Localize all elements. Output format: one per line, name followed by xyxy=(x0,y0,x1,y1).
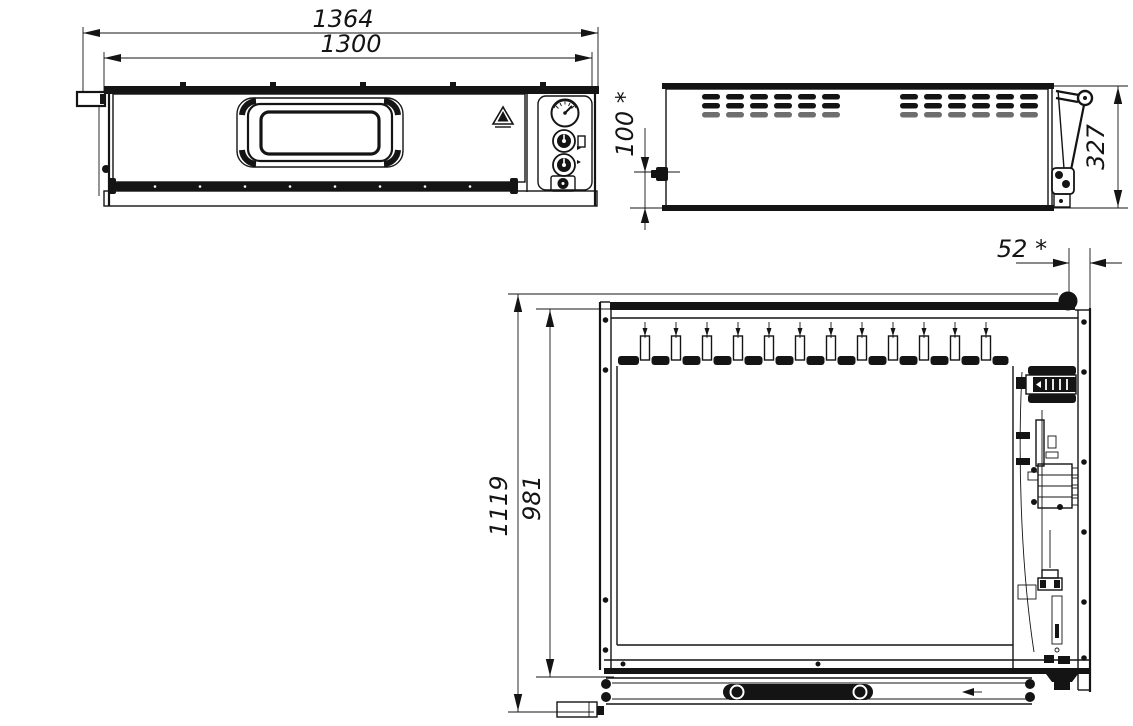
front-view: 1364 1300 xyxy=(77,5,599,206)
warning-triangle-icon xyxy=(493,107,513,127)
lower-valve-assembly xyxy=(1018,530,1070,664)
pilot-assembly xyxy=(1016,420,1058,466)
door-handle-rail xyxy=(114,182,514,191)
burner-nozzle-row xyxy=(618,322,1009,365)
hinge-block xyxy=(1052,168,1074,194)
top-view: 52 * 1119 981 xyxy=(485,235,1122,717)
datum-arrow xyxy=(962,688,974,696)
capillary-line xyxy=(1020,372,1034,652)
terminal-block xyxy=(1016,366,1076,403)
rear-foot xyxy=(1046,674,1078,690)
gas-valve xyxy=(1028,464,1078,510)
door-handle-top xyxy=(723,684,873,700)
top-door xyxy=(557,678,1035,717)
dim-door-width-label: 1300 xyxy=(320,30,381,58)
dim-side-height-label: 327 xyxy=(1082,123,1110,170)
nozzle xyxy=(641,322,991,360)
control-panel xyxy=(538,96,592,191)
ignition-button[interactable] xyxy=(551,176,575,191)
dim-overall-width-label: 1364 xyxy=(312,5,373,33)
rear-edge xyxy=(610,302,1075,310)
front-body xyxy=(77,82,599,206)
thermostat-knob[interactable] xyxy=(553,130,581,152)
door-panel xyxy=(113,94,525,182)
timer-knob[interactable] xyxy=(553,154,581,176)
dim-burner-offset-label: 100 * xyxy=(611,91,639,156)
vent-louvers-right xyxy=(900,94,1038,118)
drawing-canvas: 1364 1300 xyxy=(0,0,1133,726)
dim-overall-depth-label: 1119 xyxy=(485,475,513,536)
side-knob-dot xyxy=(102,165,110,173)
side-body xyxy=(651,83,1054,211)
rear-knob-dot xyxy=(1059,292,1078,311)
base-panel xyxy=(104,191,597,206)
gas-inlet-knob xyxy=(656,167,668,181)
selector-switch[interactable] xyxy=(578,136,585,147)
temperature-gauge xyxy=(552,100,579,127)
vent-louvers-left xyxy=(702,94,840,118)
top-body xyxy=(600,292,1090,693)
front-handle-plan xyxy=(557,702,604,717)
dim-rear-gap-label: 52 * xyxy=(997,235,1047,263)
viewing-window xyxy=(237,98,403,167)
dim-body-depth-label: 981 xyxy=(518,475,546,521)
service-column xyxy=(1016,366,1078,690)
side-view: 100 * 327 xyxy=(611,83,1128,230)
